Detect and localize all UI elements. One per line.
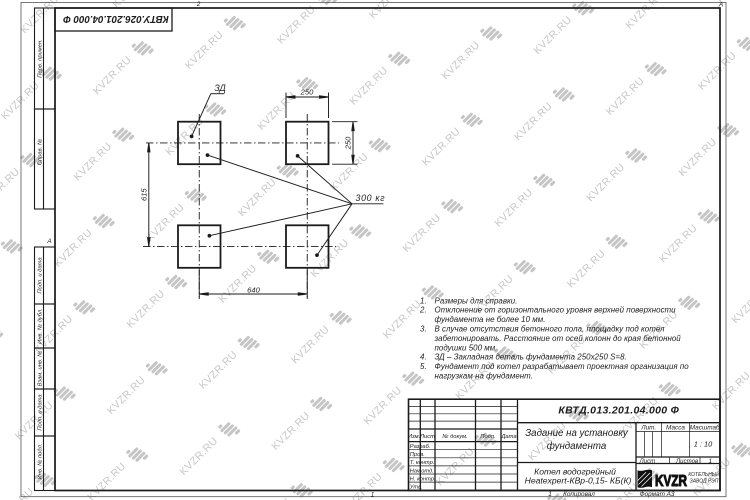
svg-text:нагрузкам на фундамент.: нагрузкам на фундамент.: [435, 372, 533, 381]
svg-text:КВТД.013.201.04.000 Ф: КВТД.013.201.04.000 Ф: [558, 405, 679, 417]
svg-text:фундамента не более 10 мм.: фундамента не более 10 мм.: [435, 315, 546, 324]
svg-text:4.: 4.: [420, 353, 427, 362]
svg-text:Пров.: Пров.: [410, 452, 425, 458]
svg-text:забетонировать. Расстояние от: забетонировать. Расстояние от осей колон…: [434, 334, 682, 343]
svg-text:подушки 500 мм.: подушки 500 мм.: [435, 343, 498, 352]
svg-text:Размеры для справки.: Размеры для справки.: [435, 296, 518, 305]
svg-text:KVZR.RU: KVZR.RU: [124, 288, 167, 331]
svg-text:ЗАВОД РЭП: ЗАВОД РЭП: [690, 479, 719, 485]
svg-text:1: 1: [548, 491, 552, 498]
svg-text:KVZR.RU: KVZR.RU: [492, 186, 535, 229]
svg-text:Лист: Лист: [639, 458, 656, 465]
svg-text:KVZR.RU: KVZR.RU: [0, 166, 22, 209]
svg-text:Фундамент под котел разрабатыв: Фундамент под котел разрабатывает проект…: [435, 362, 690, 371]
svg-text:Справ. №: Справ. №: [38, 139, 44, 165]
svg-text:KVZR.RU: KVZR.RU: [696, 50, 739, 93]
svg-text:В случае отсутствия бетонного: В случае отсутствия бетонного пола, площ…: [435, 325, 666, 334]
svg-text:KVZR.RU: KVZR.RU: [0, 252, 3, 295]
svg-text:KVZR.RU: KVZR.RU: [710, 369, 750, 412]
svg-text:KVZR.RU: KVZR.RU: [183, 29, 226, 72]
svg-text:KVZR.RU: KVZR.RU: [308, 237, 351, 280]
svg-text:KVZR.RU: KVZR.RU: [439, 39, 482, 82]
svg-text:KVZR.RU: KVZR.RU: [420, 125, 463, 168]
svg-text:Листов: Листов: [675, 458, 698, 465]
svg-text:А: А: [46, 238, 51, 245]
svg-text:KVZR.RU: KVZR.RU: [269, 410, 312, 453]
svg-text:Копировал: Копировал: [563, 491, 595, 498]
svg-text:KVZR.RU: KVZR.RU: [85, 460, 128, 500]
svg-text:KVZR.RU: KVZR.RU: [347, 64, 390, 107]
svg-text:фундамента: фундамента: [547, 441, 607, 452]
svg-text:KVZR.RU: KVZR.RU: [91, 54, 134, 97]
svg-text:KVZR.RU: KVZR.RU: [0, 486, 36, 500]
svg-text:640: 640: [247, 286, 260, 295]
svg-text:Дата: Дата: [500, 434, 517, 440]
svg-text:Подп. и дата: Подп. и дата: [38, 257, 44, 294]
svg-text:KVZR.RU: KVZR.RU: [565, 247, 608, 290]
svg-text:KVZR.RU: KVZR.RU: [110, 0, 153, 11]
svg-text:KVZR.RU: KVZR.RU: [216, 262, 259, 305]
svg-text:Подп. и дата: Подп. и дата: [38, 394, 44, 431]
svg-text:Инв. № подл.: Инв. № подл.: [38, 444, 44, 480]
svg-text:2.: 2.: [419, 306, 427, 315]
svg-text:KVZR.RU: KVZR.RU: [275, 3, 318, 46]
svg-text:KVZR.RU: KVZR.RU: [361, 384, 404, 427]
svg-text:KVZR.RU: KVZR.RU: [623, 0, 666, 32]
svg-text:Масса: Масса: [666, 425, 685, 432]
svg-text:KVZR.RU: KVZR.RU: [531, 14, 574, 57]
svg-text:Нач.отд.: Нач.отд.: [410, 468, 434, 474]
svg-text:KVZR.RU: KVZR.RU: [367, 0, 410, 21]
svg-text:Т. контр.: Т. контр.: [410, 460, 435, 466]
svg-text:KVZR.RU: KVZR.RU: [512, 100, 555, 143]
svg-text:Отклонение от горизонтального: Отклонение от горизонтального уровня вер…: [435, 306, 677, 315]
svg-text:Изм.: Изм.: [408, 434, 420, 440]
svg-text:ЗД – Закладная деталь фундамен: ЗД – Закладная деталь фундамента 250х250…: [435, 353, 627, 362]
svg-text:KVZR.RU: KVZR.RU: [236, 176, 279, 219]
svg-text:250: 250: [344, 136, 353, 150]
svg-text:KVZR.RU: KVZR.RU: [342, 471, 385, 500]
svg-text:Подп.: Подп.: [480, 434, 495, 440]
svg-text:№ докум.: № докум.: [442, 434, 468, 440]
svg-text:1 : 10: 1 : 10: [694, 440, 713, 449]
svg-text:KVZR.RU: KVZR.RU: [289, 323, 332, 366]
svg-text:KVZR.RU: KVZR.RU: [177, 435, 220, 478]
svg-text:3.: 3.: [420, 325, 427, 334]
svg-text:250: 250: [300, 88, 314, 97]
svg-text:5.: 5.: [420, 362, 427, 371]
svg-text:KVZR.RU: KVZR.RU: [729, 283, 750, 326]
svg-text:KVZR.RU: KVZR.RU: [328, 151, 371, 194]
svg-text:Взам. инв. №: Взам. инв. №: [38, 351, 44, 387]
svg-text:1: 1: [371, 492, 375, 499]
svg-text:KVZR.RU: KVZR.RU: [105, 374, 148, 417]
svg-text:Формат А3: Формат А3: [640, 491, 675, 498]
svg-text:KVZR.RU: KVZR.RU: [604, 75, 647, 118]
svg-text:Масштаб: Масштаб: [690, 424, 720, 432]
svg-text:Инв. № дубл.: Инв. № дубл.: [38, 308, 44, 344]
svg-text:ЗД: ЗД: [214, 83, 225, 93]
svg-text:KVZR.RU: KVZR.RU: [676, 136, 719, 179]
svg-text:2: 2: [196, 1, 201, 8]
svg-text:Heatexpert-КВр-0,15- КБ(К): Heatexpert-КВр-0,15- КБ(К): [525, 476, 632, 486]
svg-text:Перв. примен.: Перв. примен.: [38, 39, 44, 78]
svg-text:300 кг: 300 кг: [356, 193, 386, 203]
svg-text:KVZR.RU: KVZR.RU: [71, 140, 114, 183]
svg-text:Утв.: Утв.: [409, 485, 423, 491]
svg-text:КВТУ.026.201.04.000 Ф: КВТУ.026.201.04.000 Ф: [63, 13, 169, 24]
svg-text:1: 1: [709, 458, 713, 465]
svg-text:КОТЕЛЬНЫЙ: КОТЕЛЬНЫЙ: [688, 470, 720, 478]
svg-text:KVZR.RU: KVZR.RU: [52, 227, 95, 270]
svg-text:615: 615: [139, 188, 148, 201]
svg-text:Лист: Лист: [419, 434, 435, 440]
svg-text:KVZR: KVZR: [655, 473, 687, 490]
svg-text:KVZR.RU: KVZR.RU: [197, 349, 240, 392]
svg-text:1.: 1.: [420, 296, 427, 305]
svg-text:Задание на установку: Задание на установку: [525, 428, 629, 439]
svg-text:Н. контр.: Н. контр.: [410, 476, 436, 482]
svg-text:KVZR.RU: KVZR.RU: [400, 212, 443, 255]
svg-text:Лит.: Лит.: [640, 425, 656, 432]
svg-text:Разраб.: Разраб.: [410, 444, 431, 450]
svg-text:KVZR.RU: KVZR.RU: [657, 222, 700, 265]
svg-text:KVZR.RU: KVZR.RU: [381, 298, 424, 341]
svg-text:KVZR.RU: KVZR.RU: [584, 161, 627, 204]
